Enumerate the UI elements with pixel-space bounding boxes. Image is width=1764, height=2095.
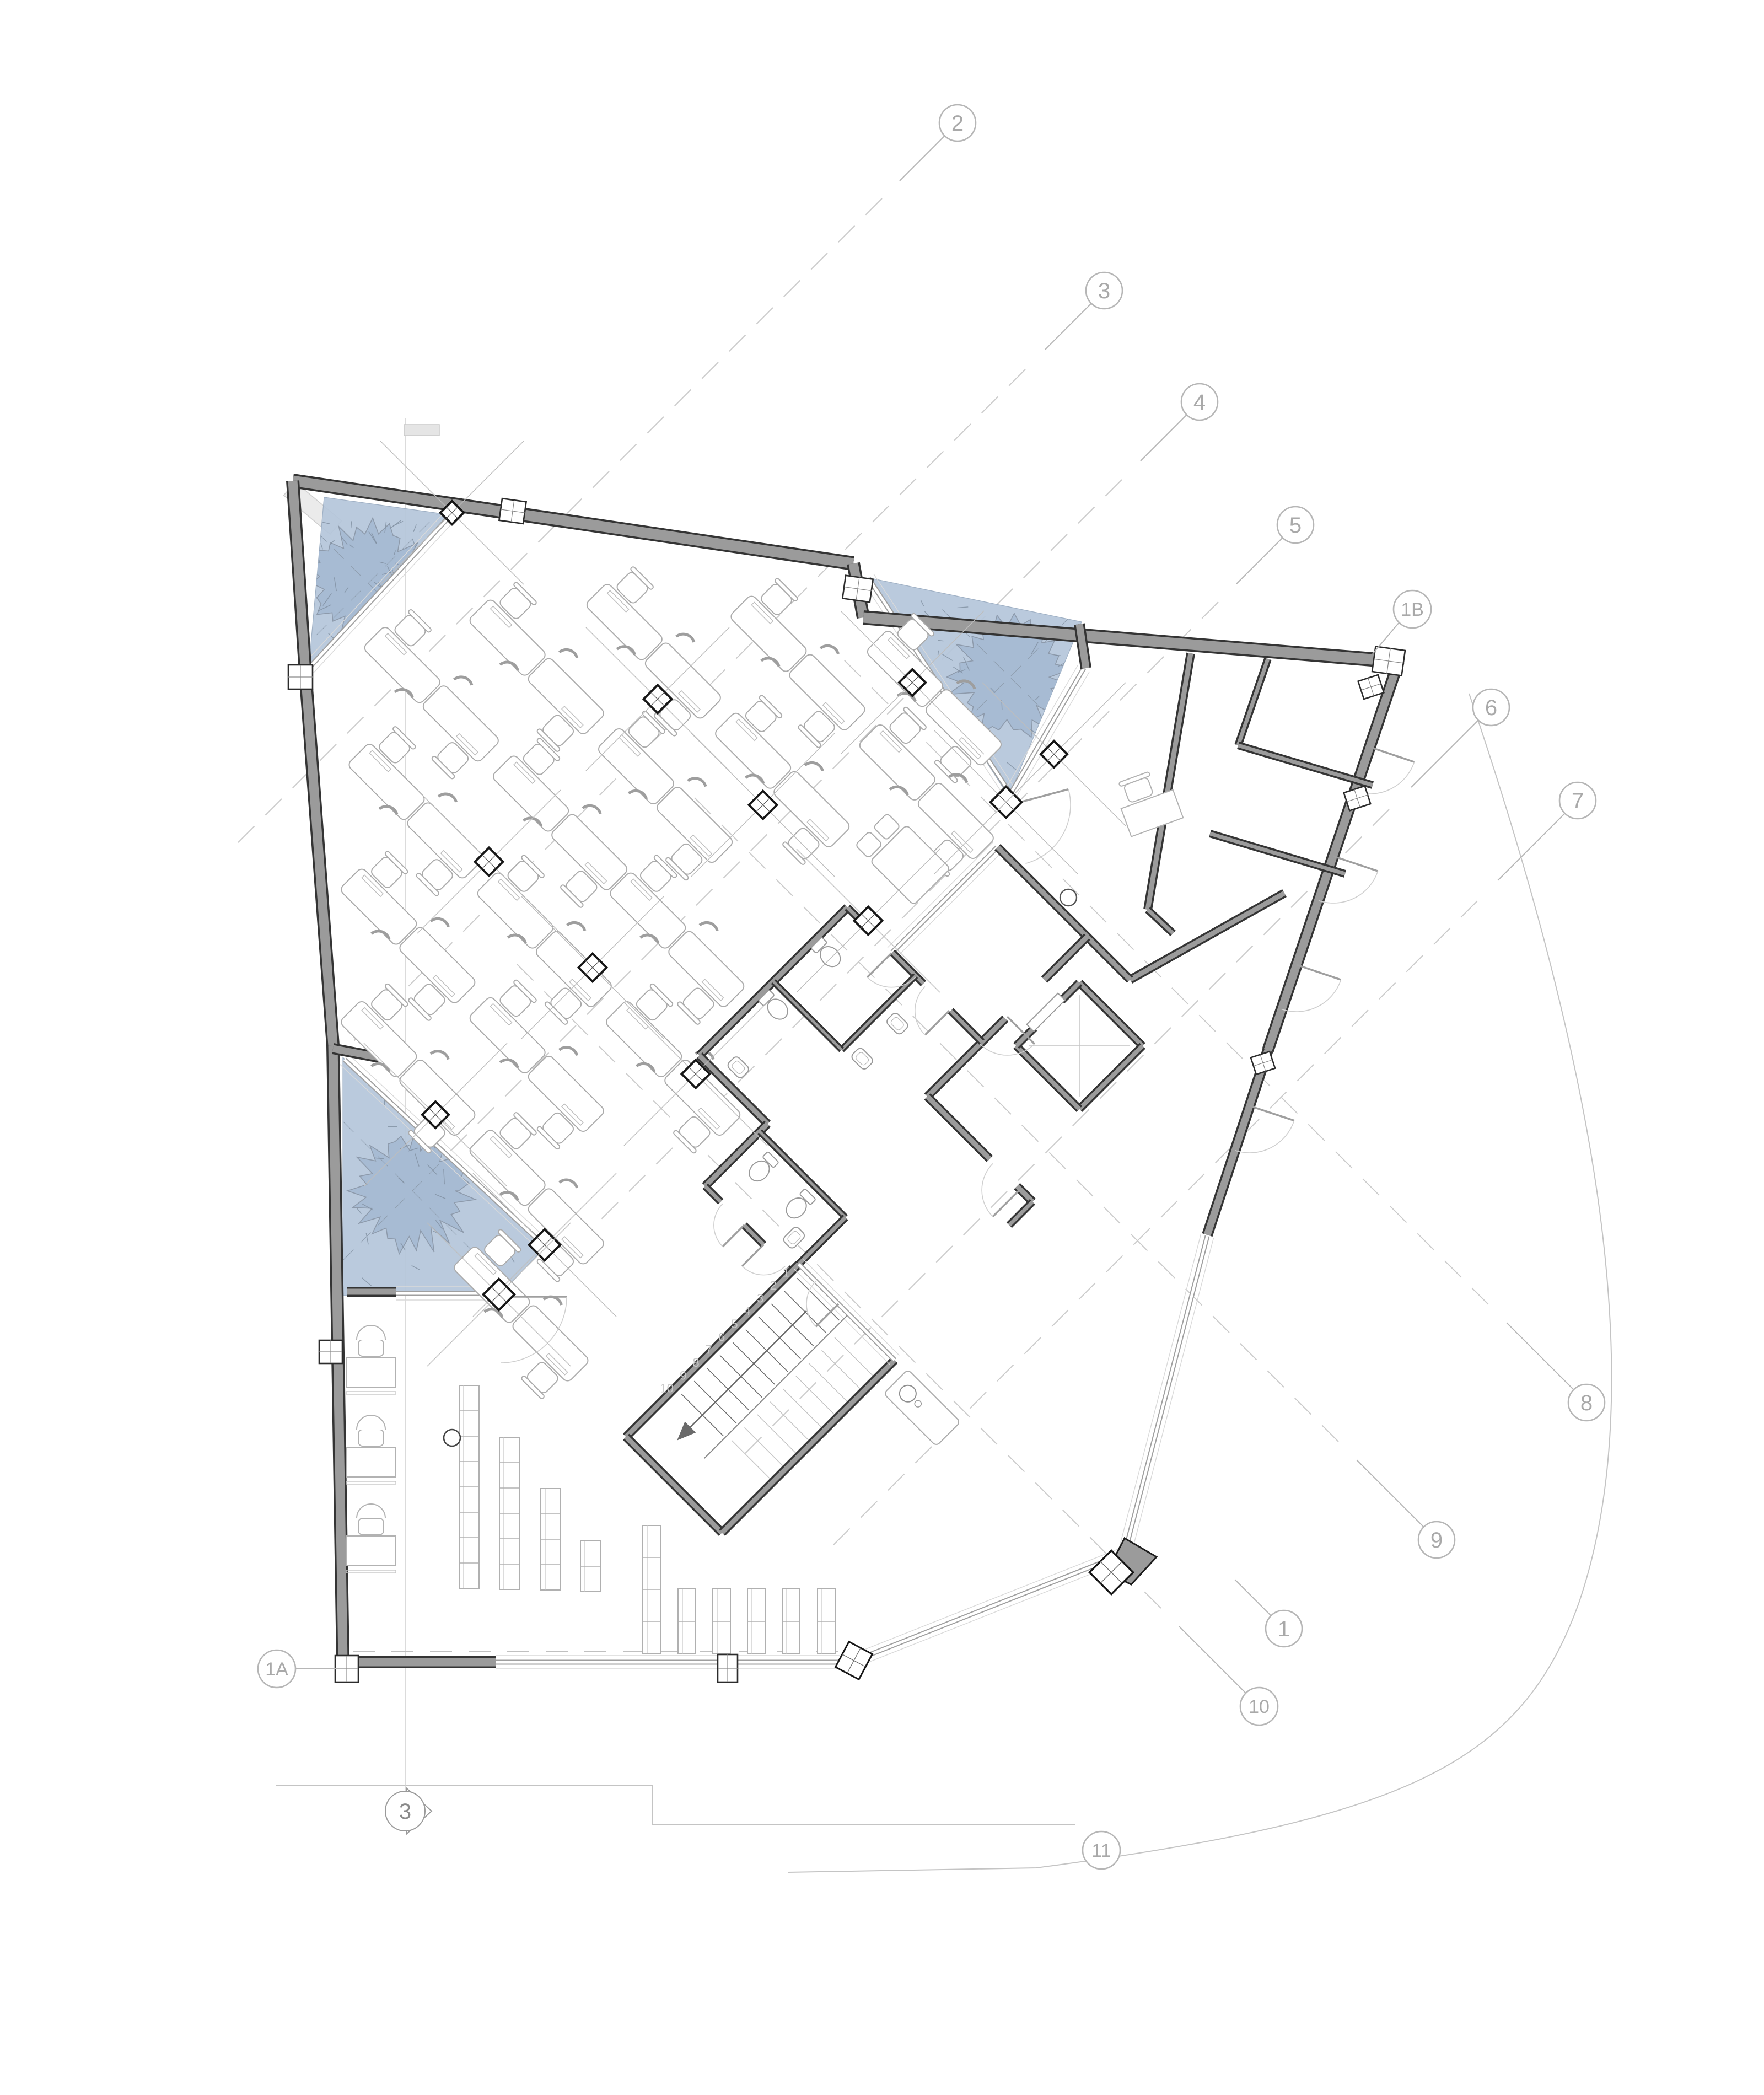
grid-bubble-3: 3 xyxy=(1086,272,1122,309)
svg-text:9: 9 xyxy=(1430,1528,1443,1553)
column-block xyxy=(718,1654,738,1682)
column-block xyxy=(288,665,313,689)
stair-tread-number: 7 xyxy=(706,1343,712,1357)
column-block xyxy=(836,1642,873,1679)
columns-layer xyxy=(288,441,1405,1682)
column-block xyxy=(1358,675,1384,699)
grid-bubble-10: 10 xyxy=(1240,1688,1278,1725)
stair-tread-number: 10 xyxy=(660,1382,673,1395)
grid-bubble-2: 2 xyxy=(939,105,976,141)
site-object xyxy=(404,425,439,436)
shelving-unit xyxy=(499,1437,519,1589)
svg-text:1: 1 xyxy=(1278,1617,1290,1641)
grid-bubble-1B: 1B xyxy=(1394,590,1431,628)
grid-bubble-8: 8 xyxy=(1568,1384,1605,1421)
shelving-unit xyxy=(580,1541,600,1592)
column-block xyxy=(499,498,526,524)
shelving-unit xyxy=(459,1385,479,1588)
floor-column xyxy=(1060,889,1077,906)
stair-tread-number: 9 xyxy=(680,1368,686,1382)
svg-text:11: 11 xyxy=(1091,1840,1111,1861)
sink xyxy=(850,1046,874,1071)
sink xyxy=(726,1055,750,1079)
floor-plan-canvas: 12345678910 2 3 4 5 1B 6 7 8 9 1 10 11 1… xyxy=(0,0,1764,2095)
svg-text:6: 6 xyxy=(1485,696,1497,720)
svg-text:1B: 1B xyxy=(1401,599,1424,620)
grid-bubble-1: 1 xyxy=(1266,1610,1302,1647)
svg-text:3: 3 xyxy=(399,1799,411,1824)
svg-text:8: 8 xyxy=(1580,1391,1593,1415)
wall-desk xyxy=(346,1415,396,1484)
shelving-unit xyxy=(541,1489,561,1590)
walls-layer xyxy=(293,481,1399,1662)
column-block xyxy=(1344,786,1371,811)
stair-tread-number: 4 xyxy=(744,1304,751,1318)
stair-tread-number: 6 xyxy=(718,1330,725,1344)
shelving-unit xyxy=(643,1525,660,1653)
stair-tread-number: 2 xyxy=(770,1279,776,1292)
column-block xyxy=(1372,646,1405,675)
column-block xyxy=(842,576,873,603)
grid-bubble-11: 11 xyxy=(1083,1831,1120,1869)
wall-desk xyxy=(346,1325,396,1394)
shelving-unit xyxy=(782,1589,800,1654)
column-block xyxy=(1251,1051,1275,1075)
floor-column xyxy=(444,1430,460,1446)
grid-bubble-4: 4 xyxy=(1181,384,1218,420)
grid-bubble-1A: 1A xyxy=(258,1650,295,1688)
grid-bubble-7: 7 xyxy=(1559,782,1596,819)
sink xyxy=(782,1226,806,1250)
column-diamond xyxy=(521,896,664,1039)
column-block xyxy=(319,1340,342,1363)
wall-desk xyxy=(346,1504,396,1573)
svg-text:5: 5 xyxy=(1289,513,1302,538)
stair-tread-number: 8 xyxy=(692,1356,699,1369)
shelving-unit xyxy=(818,1589,835,1654)
shelving-unit xyxy=(747,1589,765,1654)
stair-tread-number: 3 xyxy=(757,1291,763,1305)
section-marker-3: 3 xyxy=(385,1788,432,1834)
toilet xyxy=(782,1188,816,1222)
grid-bubble-9: 9 xyxy=(1418,1522,1455,1558)
sink xyxy=(885,1012,910,1036)
shelving-unit xyxy=(713,1589,730,1654)
shelving-unit xyxy=(678,1589,696,1654)
svg-text:4: 4 xyxy=(1193,390,1206,415)
svg-text:2: 2 xyxy=(951,111,964,136)
site-gridlines xyxy=(232,198,1612,1872)
svg-text:3: 3 xyxy=(1098,279,1110,303)
grid-bubble-6: 6 xyxy=(1473,689,1509,726)
svg-text:7: 7 xyxy=(1572,789,1584,813)
pantry-counter xyxy=(884,1369,960,1446)
stair-tread-number: 5 xyxy=(731,1317,738,1331)
svg-text:1A: 1A xyxy=(265,1659,288,1680)
grid-bubble-5: 5 xyxy=(1277,507,1314,543)
svg-text:10: 10 xyxy=(1249,1696,1270,1717)
toilet xyxy=(745,1151,779,1185)
